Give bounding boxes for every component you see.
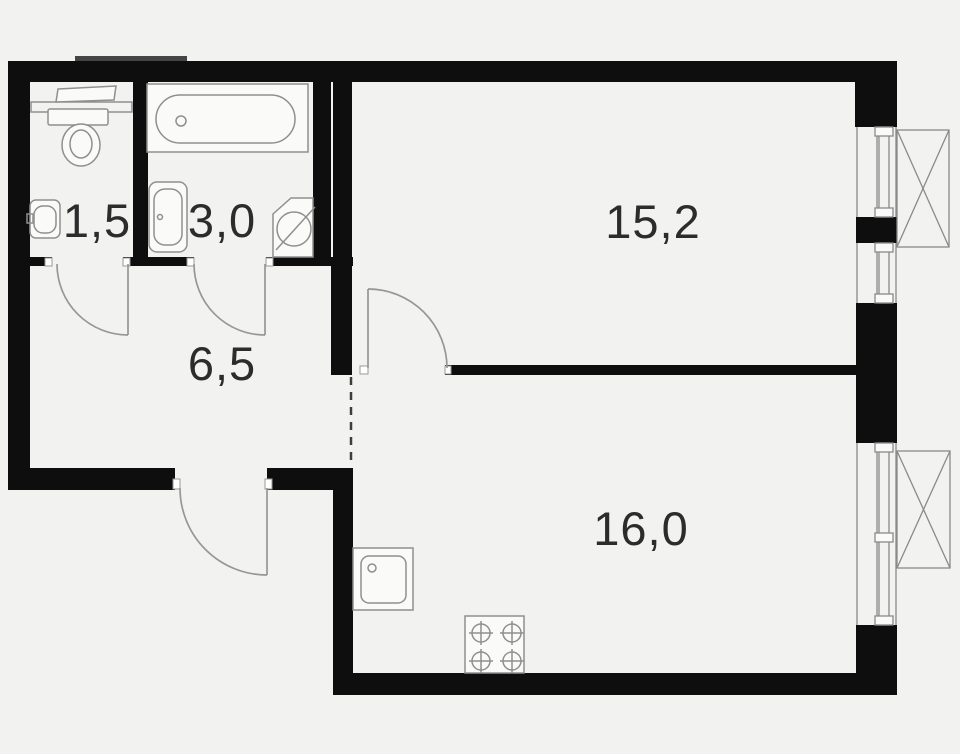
floor-plan-canvas: 1,5 3,0 6,5 15,2 16,0 [0, 0, 960, 754]
jamb-notch [123, 258, 130, 266]
bedroom-window-small [855, 243, 898, 303]
bedroom-door [368, 289, 447, 368]
window-frame-tick [875, 208, 893, 217]
door-swing-arc [57, 264, 128, 335]
floor-plan: 1,5 3,0 6,5 15,2 16,0 [0, 0, 960, 754]
wall-top [8, 61, 897, 82]
door-swing-arc [368, 289, 447, 368]
jamb-notch [265, 479, 272, 489]
toilet-tank [48, 109, 108, 125]
washing-machine-body [273, 198, 313, 257]
wall-right-top [855, 61, 897, 127]
window-frame-tick [875, 127, 893, 136]
wall-kitchen-bottom [333, 673, 897, 695]
door-swing-arc [194, 264, 265, 335]
wall-hall-bedroom-partition [331, 265, 352, 375]
jamb-notch [266, 258, 273, 266]
stove-icon [465, 616, 524, 673]
wall-wc-bath-divider [133, 82, 148, 258]
room-area-label-hallway: 6,5 [188, 337, 256, 390]
entrance-door [180, 488, 267, 575]
wall-bath-bottom-c [266, 257, 353, 266]
room-area-label-kitchen: 16,0 [593, 502, 688, 555]
ac-basket-icon-top [897, 130, 949, 247]
jamb-notch [187, 258, 194, 266]
window-frame-tick [875, 243, 893, 252]
bathroom-door [194, 264, 265, 335]
room-area-label-wc: 1,5 [63, 194, 131, 247]
wc-sink-icon [27, 200, 60, 238]
jamb-notch [173, 479, 180, 489]
wall-wc-bottom-b [123, 257, 194, 266]
bathtub-icon [147, 84, 308, 152]
door-swing-arc [180, 488, 267, 575]
doors [57, 264, 447, 575]
ac-basket-icon-bottom [897, 451, 950, 568]
wall-left [8, 61, 30, 490]
kitchen-window [855, 443, 898, 625]
wc-shelf-icon [56, 86, 116, 102]
window-frame-tick [875, 616, 893, 625]
wc-door [57, 264, 128, 335]
washing-machine-icon [273, 198, 315, 257]
bedroom-window-large [855, 127, 898, 217]
jamb-notch [45, 258, 52, 266]
kitchen-sink-icon [353, 548, 413, 610]
wall-kitchen-west [333, 468, 353, 675]
wall-hall-bottom-left [8, 468, 175, 490]
wall-right-middle [856, 303, 897, 443]
jamb-notch [360, 366, 368, 374]
kitchen-fixtures [353, 548, 524, 673]
walls [8, 61, 897, 695]
toilet-icon [48, 109, 108, 166]
bath-sink-icon [149, 182, 187, 252]
window-frame-tick [875, 533, 893, 542]
room-area-label-living: 15,2 [605, 195, 700, 248]
wall-bedroom-kitchen-divider [445, 365, 857, 375]
jamb-notch [445, 366, 451, 374]
wall-bath-east [313, 82, 331, 266]
window-frame-tick [875, 443, 893, 452]
wall-hall-bottom-right [267, 468, 353, 490]
room-area-label-bathroom: 3,0 [188, 194, 256, 247]
window-frame-tick [875, 294, 893, 303]
wall-right-pier [856, 217, 897, 243]
